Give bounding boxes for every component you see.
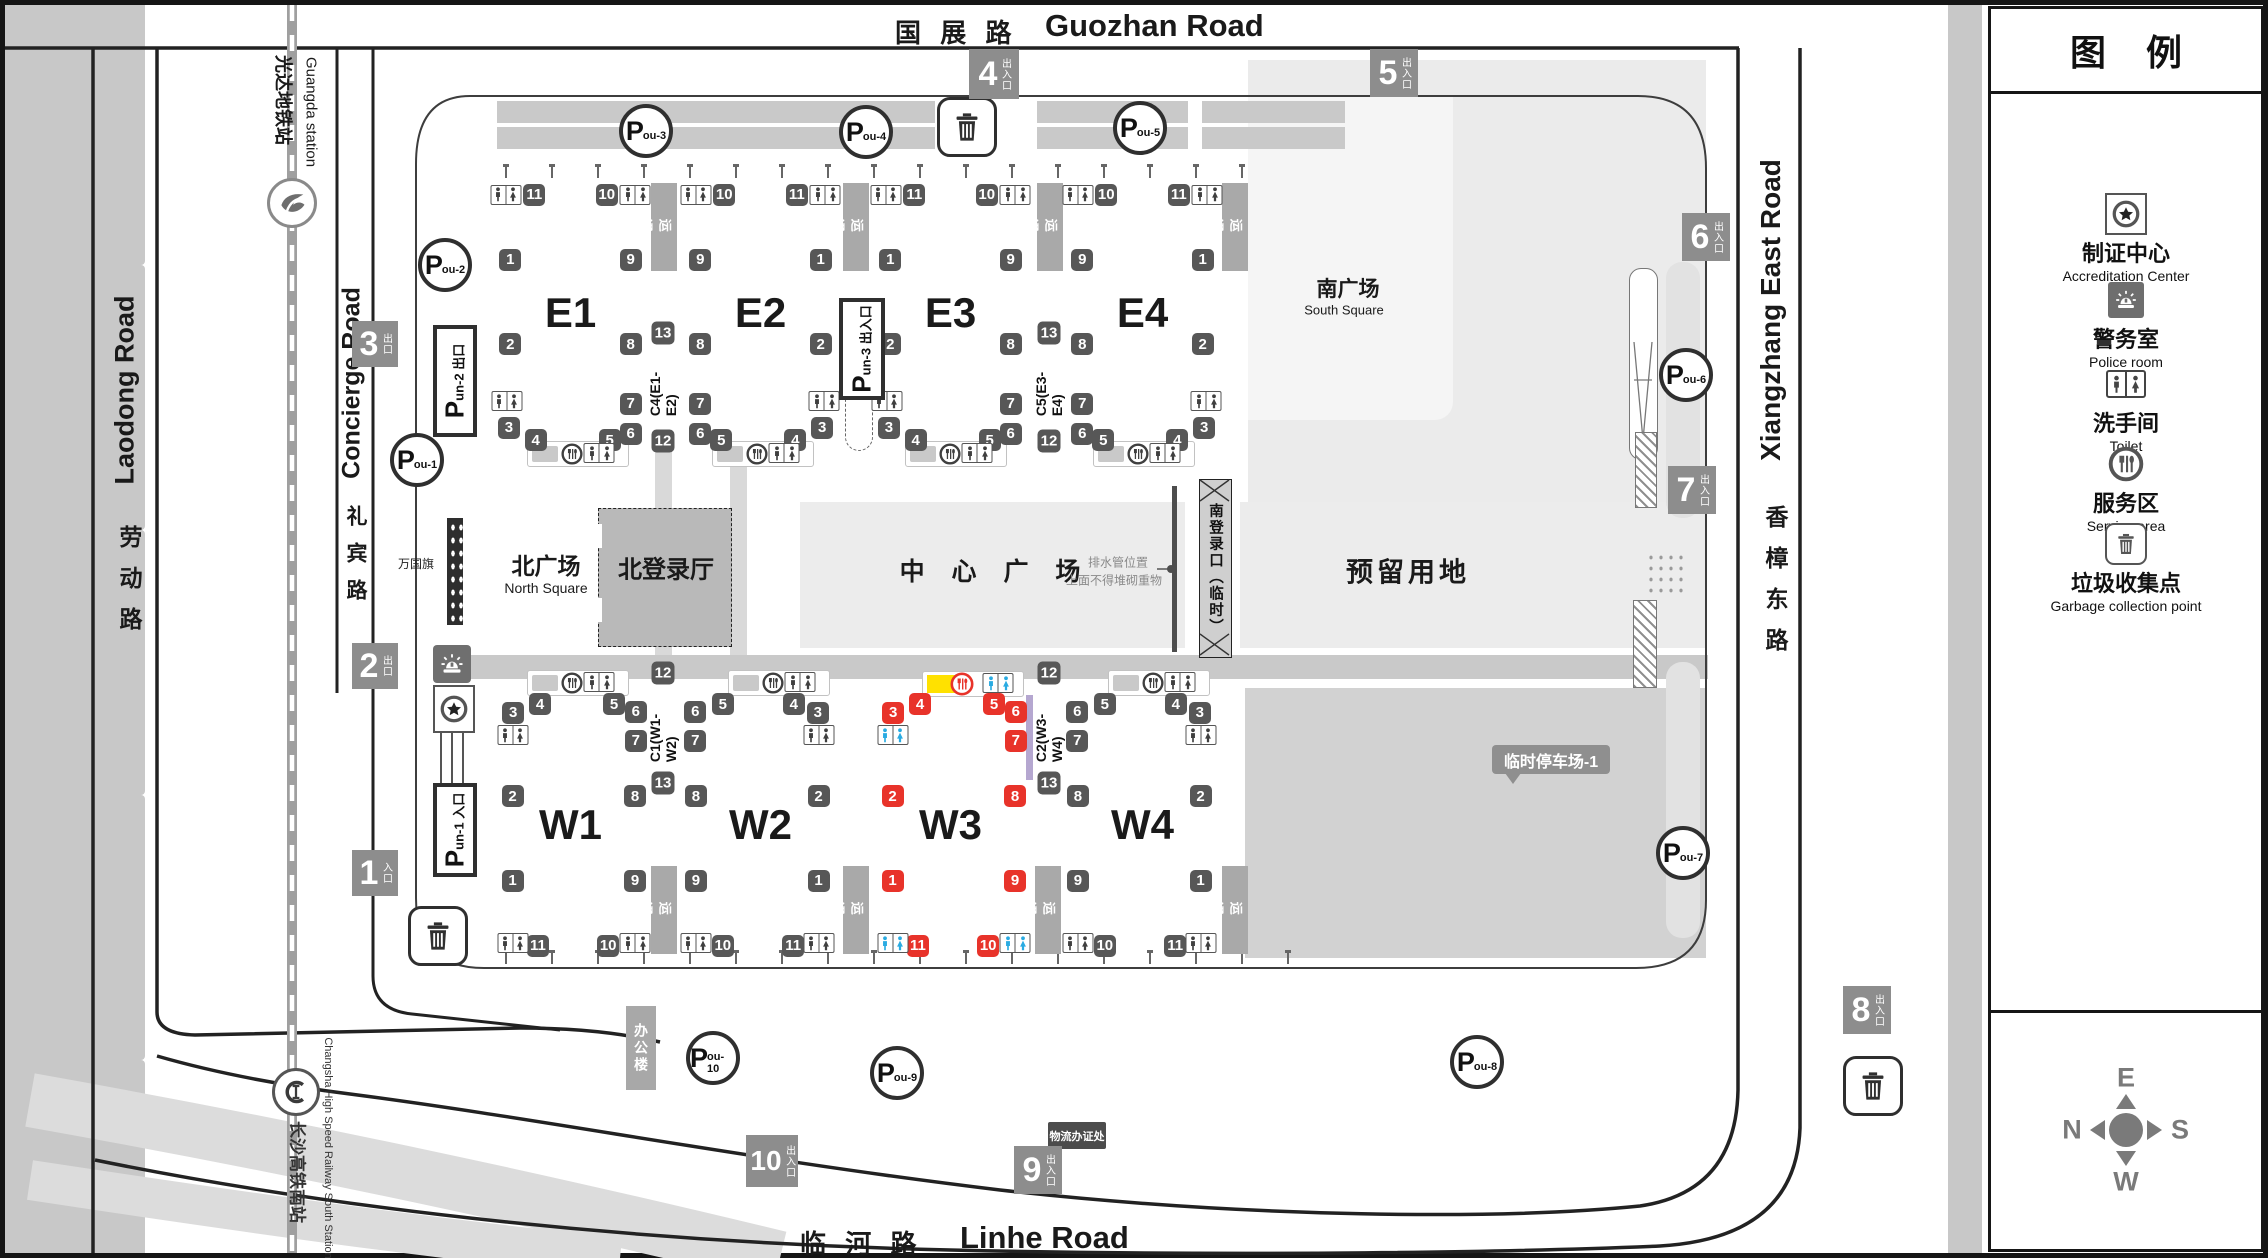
restaurant-icon (561, 443, 583, 465)
guozhan-road-label-zh: 国 展 路 (895, 13, 1017, 50)
woman-icon (824, 392, 839, 410)
hall-W4-door-10[interactable]: 10 (1094, 935, 1116, 957)
compass-s: S (2171, 1115, 2189, 1146)
woman-icon (512, 934, 527, 952)
gate-type-label: 出入口 (1872, 994, 1882, 1027)
hall-E3-door-11[interactable]: 11 (903, 184, 925, 206)
parking-ou-4[interactable]: Pou-4 (839, 105, 893, 159)
police-room-icon (433, 645, 471, 683)
service-blob (1113, 675, 1139, 691)
hall-W1-door-6[interactable]: 6 (625, 701, 647, 723)
man-icon (1063, 934, 1077, 952)
woman-icon (505, 186, 520, 204)
woman-icon (1077, 186, 1092, 204)
hall-E2-door-8[interactable]: 8 (689, 333, 711, 355)
gate-10[interactable]: 10 出入口 (746, 1135, 798, 1187)
flag-row-bar (447, 518, 463, 625)
woman-icon (892, 934, 907, 952)
hall-E1-toilet-icon (490, 185, 521, 205)
drain-note-line2: 上面不得堆砌重物 (1066, 572, 1162, 589)
gate-9[interactable]: 9 出入口 (1014, 1146, 1062, 1194)
gate-7[interactable]: 7 出入口 (1668, 466, 1716, 514)
woman-icon (635, 934, 650, 952)
hall-E2-door-11[interactable]: 11 (786, 184, 808, 206)
fence-post (1149, 166, 1151, 178)
corridor-door-13[interactable]: 13 (652, 772, 675, 795)
woman-icon (599, 673, 614, 691)
hall-E4-toilet-icon (1062, 185, 1093, 205)
gate-6[interactable]: 6 出入口 (1682, 213, 1730, 261)
hall-W1-door-4[interactable]: 4 (529, 693, 551, 715)
hall-W1-door-3[interactable]: 3 (502, 702, 524, 724)
parking-ou-9[interactable]: Pou-9 (870, 1046, 924, 1100)
road-network (0, 0, 2268, 1258)
legend-item: 洗手间Toilet (1988, 364, 2264, 454)
hall-W1-door-11[interactable]: 11 (527, 935, 549, 957)
hall-W4-door-5[interactable]: 5 (1094, 693, 1116, 715)
entry-lane-line (462, 731, 464, 783)
legend-item-zh: 垃圾收集点 (2071, 566, 2181, 598)
hall-E4-door-5[interactable]: 5 (1092, 429, 1114, 451)
parking-letter: P (626, 118, 644, 145)
temp-parking-pointer (1505, 773, 1521, 784)
garbage-icon (2105, 524, 2147, 564)
parking-letter: P (877, 1060, 895, 1087)
man-icon (621, 934, 635, 952)
turnaround-dashed (845, 396, 873, 451)
north-hall-notch (590, 598, 602, 622)
parking-ou-8[interactable]: Pou-8 (1450, 1035, 1504, 1089)
hall-W3-door-3[interactable]: 3 (882, 702, 904, 724)
fence-post (965, 166, 967, 178)
parking-letter: P (1663, 840, 1681, 867)
legend-item-en: Garbage collection point (2051, 598, 2202, 614)
fence-post (1149, 952, 1151, 964)
hall-W2-door-4[interactable]: 4 (783, 693, 805, 715)
fence-post (643, 952, 645, 964)
woman-icon (825, 186, 840, 204)
hall-W2-door-11[interactable]: 11 (782, 935, 804, 957)
hall-W1-toilet-icon (620, 933, 651, 953)
hall-E2-door-10[interactable]: 10 (713, 184, 735, 206)
parking-un-3[interactable]: Pun-3 出入口 (839, 298, 885, 400)
corridor-label: C4(E1-E2) (647, 372, 679, 416)
parking-id: Pun-3 出入口 (847, 305, 878, 392)
xiangzhang-road-label-en: Xiangzhang East Road (1755, 159, 1787, 461)
hall-W4-door-3[interactable]: 3 (1189, 702, 1211, 724)
hall-W3-toilet-icon (877, 725, 908, 745)
man-icon (585, 673, 599, 691)
man-icon (1166, 673, 1180, 691)
man-icon (498, 726, 512, 744)
south-square-label-en: South Square (1304, 303, 1384, 318)
parking-ou-3[interactable]: Pou-3 (619, 104, 673, 158)
entry-lane-line (451, 731, 453, 783)
hall-E1-door-2[interactable]: 2 (499, 333, 521, 355)
hall-W3-door-2[interactable]: 2 (882, 785, 904, 807)
parking-letter: P (397, 447, 415, 474)
corridor-label: C5(E3-E4) (1033, 372, 1065, 416)
hall-W1-door-10[interactable]: 10 (597, 935, 619, 957)
hall-E3-door-10[interactable]: 10 (976, 184, 998, 206)
center-plaza-label: 中 心 广 场 (900, 552, 1091, 588)
man-icon (498, 934, 512, 952)
corridor-door-13[interactable]: 13 (652, 322, 675, 345)
hall-E1-toilet-icon (491, 391, 522, 411)
gate-type-label: 出入口 (784, 1145, 794, 1178)
parking-un-1[interactable]: Pun-1 入口 (433, 783, 477, 877)
hall-E1-door-6[interactable]: 6 (620, 423, 642, 445)
hall-E4-toilet-icon (1192, 185, 1223, 205)
hall-W2-toilet-icon (803, 725, 834, 745)
corridor-door-12[interactable]: 12 (1038, 662, 1061, 685)
fence-post (919, 166, 921, 178)
hall-W3-door-6[interactable]: 6 (1005, 701, 1027, 723)
office-building: 办公楼 (626, 1006, 656, 1090)
accreditation-icon (433, 685, 475, 733)
parking-id: ou-10 (707, 1051, 736, 1075)
hall-E1-toilet-icon (620, 185, 651, 205)
service-toilet-icon (1165, 672, 1196, 692)
hall-E2-label: E2 (735, 289, 786, 337)
parking-id: ou-2 (442, 264, 465, 276)
woman-icon (695, 186, 710, 204)
fence-post (1241, 166, 1243, 178)
parking-ou-10[interactable]: Pou-10 (686, 1031, 740, 1085)
hall-E4-door-11[interactable]: 11 (1168, 184, 1190, 206)
hall-W2-door-9[interactable]: 9 (685, 870, 707, 892)
hall-E4-door-10[interactable]: 10 (1095, 184, 1117, 206)
woman-icon (512, 726, 527, 744)
hall-E4-door-7[interactable]: 7 (1071, 393, 1093, 415)
parking-id: ou-6 (1683, 374, 1706, 386)
restaurant-icon (1142, 672, 1164, 694)
parking-ou-1[interactable]: Pou-1 (390, 433, 444, 487)
hall-E1-door-4[interactable]: 4 (525, 429, 547, 451)
legend-item: 服务区Service area (1988, 444, 2264, 534)
fence-post (827, 166, 829, 178)
hall-E2-door-3[interactable]: 3 (811, 417, 833, 439)
corridor: C1(W1-W2) (649, 694, 677, 782)
fence-post (505, 952, 507, 964)
hall-E3-door-4[interactable]: 4 (905, 429, 927, 451)
gate-5[interactable]: 5 出入口 (1370, 49, 1418, 97)
legend-item: 警务室Police room (1988, 280, 2264, 370)
fence-post (551, 952, 553, 964)
south-entry-hatch (1199, 479, 1230, 656)
parking-id: ou-3 (643, 130, 666, 142)
parking-ou-2[interactable]: Pou-2 (418, 238, 472, 292)
gate-number: 3 (360, 327, 379, 361)
hall-W3-door-8[interactable]: 8 (1004, 785, 1026, 807)
service-toilet-icon (983, 673, 1014, 693)
man-icon (1186, 934, 1200, 952)
gate-number: 4 (979, 57, 998, 91)
corridor: C4(E1-E2) (649, 350, 677, 438)
hall-E1-door-3[interactable]: 3 (498, 417, 520, 439)
gate-type-label: 出入口 (999, 58, 1009, 91)
man-icon (811, 186, 825, 204)
hall-W1-door-1[interactable]: 1 (502, 870, 524, 892)
service-toilet-icon (785, 672, 816, 692)
woman-icon (1015, 934, 1030, 952)
hall-W4-door-6[interactable]: 6 (1066, 701, 1088, 723)
hall-W4-door-4[interactable]: 4 (1165, 693, 1187, 715)
corridor-door-13[interactable]: 13 (1038, 772, 1061, 795)
gate-1[interactable]: 1 入口 (352, 850, 398, 896)
parking-letter: P (846, 119, 864, 146)
gate-number: 5 (1379, 56, 1398, 90)
woman-icon (784, 444, 799, 462)
parking-ou-7[interactable]: Pou-7 (1656, 826, 1710, 880)
hall-E4-door-9[interactable]: 9 (1071, 249, 1093, 271)
woman-icon (635, 186, 650, 204)
gate-2[interactable]: 2 出口 (352, 643, 398, 689)
corridor-door-12[interactable]: 12 (652, 662, 675, 685)
man-icon (804, 934, 818, 952)
fence-post (873, 166, 875, 178)
drain-note-line1: 排水管位置 (1088, 554, 1148, 571)
man-icon (1001, 934, 1015, 952)
restaurant-icon (939, 443, 961, 465)
accreditation-icon (2105, 194, 2147, 234)
hall-W4-door-2[interactable]: 2 (1190, 785, 1212, 807)
concierge-road-label-zh: 礼宾路 (340, 505, 370, 616)
hall-E2-toilet-icon (680, 185, 711, 205)
corridor-door-13[interactable]: 13 (1038, 322, 1061, 345)
hall-W4-door-11[interactable]: 11 (1164, 935, 1186, 957)
freight-channel-label: 3#货运通道 (1035, 902, 1061, 918)
temp-parking-tag: 临时停车场-1 (1492, 745, 1610, 774)
corridor-door-12[interactable]: 12 (652, 430, 675, 453)
gate-type-label: 出入口 (1399, 57, 1409, 90)
parking-ou-5[interactable]: Pou-5 (1113, 101, 1167, 155)
hall-W2-door-8[interactable]: 8 (685, 785, 707, 807)
legend-item: 垃圾收集点Garbage collection point (1988, 524, 2264, 614)
hall-W3-door-1[interactable]: 1 (882, 870, 904, 892)
hall-W1-door-7[interactable]: 7 (625, 730, 647, 752)
restaurant-icon (746, 443, 768, 465)
gate-type-label: 出入口 (1711, 221, 1721, 254)
hall-W2-door-10[interactable]: 10 (712, 935, 734, 957)
man-icon (878, 726, 892, 744)
north-hall-notch (590, 524, 602, 548)
fence-post (1195, 166, 1197, 178)
toilet-icon (2106, 364, 2146, 404)
woman-icon (1200, 934, 1215, 952)
gate-number: 10 (750, 1147, 781, 1175)
hall-W1-door-9[interactable]: 9 (624, 870, 646, 892)
hall-W4-door-7[interactable]: 7 (1066, 730, 1088, 752)
man-icon (1186, 726, 1200, 744)
hall-E4-door-2[interactable]: 2 (1192, 333, 1214, 355)
freight-channel: 6#货运通道 (651, 183, 677, 271)
east-dot-grid (1646, 552, 1686, 594)
laodong-road-line (157, 48, 660, 1042)
hall-W4-door-1[interactable]: 1 (1190, 870, 1212, 892)
fence-post (735, 952, 737, 964)
hall-E1-label: E1 (545, 289, 596, 337)
fence-post (597, 166, 599, 178)
hall-E4-toilet-icon (1191, 391, 1222, 411)
hall-W1-door-2[interactable]: 2 (502, 785, 524, 807)
fence-post (781, 166, 783, 178)
freight-channel: 2#货运通道 (843, 866, 869, 954)
restaurant-icon (950, 672, 974, 696)
linhe-road-label-en: Linhe Road (960, 1220, 1129, 1256)
hall-E4-door-1[interactable]: 1 (1192, 249, 1214, 271)
woman-icon (1165, 444, 1180, 462)
hall-E2-door-2[interactable]: 2 (810, 333, 832, 355)
hall-E4-door-3[interactable]: 3 (1193, 417, 1215, 439)
woman-icon (599, 444, 614, 462)
service-blob (733, 675, 759, 691)
hall-W2-door-5[interactable]: 5 (712, 693, 734, 715)
hall-W3-door-10[interactable]: 10 (977, 935, 999, 957)
woman-icon (977, 444, 992, 462)
hall-E1-door-10[interactable]: 10 (596, 184, 618, 206)
gate-3[interactable]: 3 出口 (352, 321, 398, 367)
hall-E3-door-6[interactable]: 6 (1000, 423, 1022, 445)
hall-E1-door-9[interactable]: 9 (620, 249, 642, 271)
hall-E4-door-8[interactable]: 8 (1071, 333, 1093, 355)
man-icon (1001, 186, 1015, 204)
parking-id: Pun-2 出口 (440, 344, 471, 418)
hall-W3-door-4[interactable]: 4 (909, 693, 931, 715)
hall-E3-door-8[interactable]: 8 (1000, 333, 1022, 355)
hall-W1-door-8[interactable]: 8 (624, 785, 646, 807)
hall-W3-door-11[interactable]: 11 (907, 935, 929, 957)
reserved-land-label: 预留用地 (1346, 551, 1470, 590)
parking-letter: P (1120, 115, 1138, 142)
logistics-office-label: 物流办证处 (1050, 1128, 1105, 1144)
hall-E1-door-1[interactable]: 1 (499, 249, 521, 271)
man-icon (770, 444, 784, 462)
north-hall-label: 北登录厅 (618, 550, 714, 585)
corridor: C2(W3-W4) (1035, 694, 1063, 782)
hall-W2-door-1[interactable]: 1 (808, 870, 830, 892)
hall-E2-door-6[interactable]: 6 (689, 423, 711, 445)
gate-number: 9 (1023, 1153, 1042, 1187)
hall-W1-toilet-icon (497, 725, 528, 745)
restaurant-icon (1127, 443, 1149, 465)
hall-E1-door-11[interactable]: 11 (523, 184, 545, 206)
freight-channel: 9#货运通道 (1222, 183, 1248, 271)
hall-W3-door-7[interactable]: 7 (1005, 730, 1027, 752)
woman-icon (1180, 673, 1195, 691)
hall-W2-door-2[interactable]: 2 (808, 785, 830, 807)
fence-post (965, 952, 967, 964)
hall-W2-door-6[interactable]: 6 (684, 701, 706, 723)
garbage-collection-icon (408, 906, 468, 966)
parking-id: ou-9 (894, 1072, 917, 1084)
gate-number: 8 (1852, 993, 1871, 1027)
woman-icon (818, 934, 833, 952)
hall-W1-label: W1 (539, 801, 602, 849)
hall-E2-door-9[interactable]: 9 (689, 249, 711, 271)
hall-E3-door-3[interactable]: 3 (878, 417, 900, 439)
laodong-road-label-en: Laodong Road (110, 296, 141, 485)
compass-w: W (2113, 1167, 2138, 1198)
hall-E3-door-1[interactable]: 1 (879, 249, 901, 271)
parking-id: ou-5 (1137, 127, 1160, 139)
logistics-office: 物流办证处 (1048, 1122, 1106, 1149)
parking-un-2[interactable]: Pun-2 出口 (433, 325, 477, 437)
man-icon (681, 934, 695, 952)
fence-post (505, 166, 507, 178)
hall-E2-door-1[interactable]: 1 (810, 249, 832, 271)
freight-channel-label: 8#货运通道 (1037, 219, 1063, 235)
hall-W1-door-5[interactable]: 5 (603, 693, 625, 715)
gate-4[interactable]: 4 出入口 (969, 49, 1019, 99)
legend-item-zh: 警务室 (2093, 322, 2159, 354)
fence-post (1057, 166, 1059, 178)
hall-E3-door-9[interactable]: 9 (1000, 249, 1022, 271)
hall-W3-label: W3 (919, 801, 982, 849)
hall-E2-door-5[interactable]: 5 (710, 429, 732, 451)
gate-number: 7 (1677, 473, 1696, 507)
hall-E2-door-7[interactable]: 7 (689, 393, 711, 415)
parking-letter: P (1666, 362, 1684, 389)
legend-item-zh: 服务区 (2093, 486, 2159, 518)
freight-channel-label: 1#货运通道 (651, 902, 677, 918)
man-icon (804, 726, 818, 744)
fence-post (1287, 952, 1289, 964)
entry-lane-line (440, 731, 442, 783)
hall-E2-toilet-icon (809, 391, 840, 411)
gate-type-label: 出入口 (1043, 1154, 1053, 1187)
north-square-label-zh: 北广场 (512, 547, 581, 581)
freight-channel-label: 9#货运通道 (1222, 219, 1248, 235)
hall-E3-door-7[interactable]: 7 (1000, 393, 1022, 415)
purple-stripe (1026, 695, 1033, 780)
hall-E4-door-6[interactable]: 6 (1071, 423, 1093, 445)
hall-E1-door-8[interactable]: 8 (620, 333, 642, 355)
hall-W4-door-9[interactable]: 9 (1067, 870, 1089, 892)
parking-ou-6[interactable]: Pou-6 (1659, 348, 1713, 402)
hall-W2-door-3[interactable]: 3 (807, 702, 829, 724)
gate-number: 1 (360, 856, 379, 890)
hall-W2-toilet-icon (680, 933, 711, 953)
concierge-road-label-en: Concierge Road (338, 287, 367, 479)
service-area-icon (2108, 444, 2144, 484)
hall-W3-door-9[interactable]: 9 (1004, 870, 1026, 892)
hall-E3-toilet-icon (870, 185, 901, 205)
parking-id: Pun-1 入口 (440, 793, 471, 867)
woman-icon (886, 392, 901, 410)
man-icon (1151, 444, 1165, 462)
hall-W3-door-5[interactable]: 5 (983, 693, 1005, 715)
hall-W4-toilet-icon (1185, 725, 1216, 745)
gate-8[interactable]: 8 出入口 (1843, 986, 1891, 1034)
hall-W4-door-8[interactable]: 8 (1067, 785, 1089, 807)
rail-station-logo (272, 1068, 320, 1116)
legend-item-zh: 洗手间 (2093, 406, 2159, 438)
corridor-door-12[interactable]: 12 (1038, 430, 1061, 453)
gate-number: 6 (1691, 220, 1710, 254)
woman-icon (506, 392, 521, 410)
hall-W1-toilet-icon (497, 933, 528, 953)
hall-E3-label: E3 (925, 289, 976, 337)
hall-E1-door-7[interactable]: 7 (620, 393, 642, 415)
legend-title: 图 例 (2070, 24, 2182, 76)
man-icon (1193, 186, 1207, 204)
man-icon (984, 674, 998, 692)
temp-parking-label: 临时停车场-1 (1504, 748, 1598, 772)
corridor: C5(E3-E4) (1035, 350, 1063, 438)
metro-station-label-en: Guangda station (303, 57, 320, 167)
hall-W2-door-7[interactable]: 7 (684, 730, 706, 752)
